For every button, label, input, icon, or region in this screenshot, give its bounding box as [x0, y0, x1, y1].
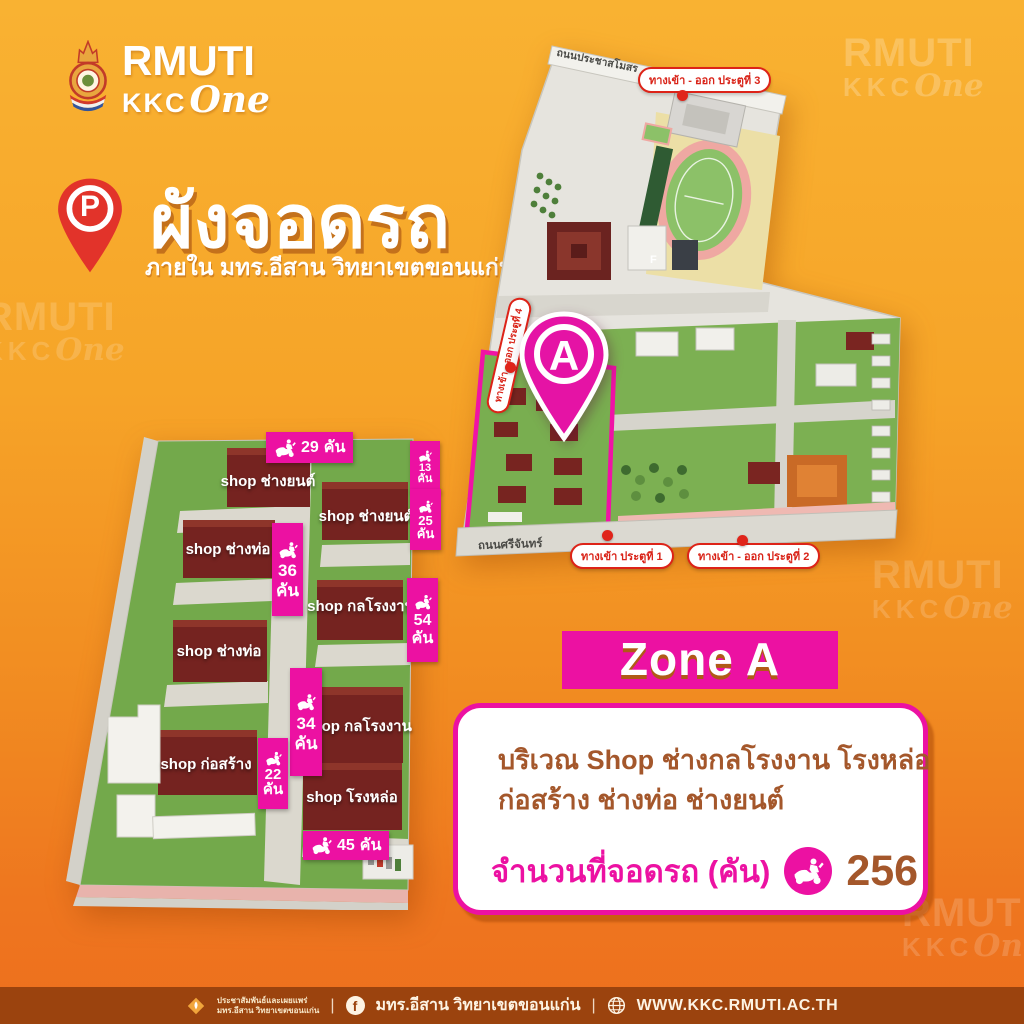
gate-1-label: ทางเข้า ประตูที่ 1: [570, 543, 674, 569]
count-pill-22: 22คัน: [258, 738, 288, 809]
pin-letter-p: P: [55, 190, 125, 224]
count-pill-36: 36คัน: [272, 523, 303, 616]
zone-a-pin: A: [516, 310, 612, 446]
building-f-label: F: [650, 254, 657, 266]
shop-label: shop ช่างยนต์: [319, 504, 414, 528]
gate-4-dot: [505, 362, 516, 373]
gate-3-label: ทางเข้า - ออก ประตูที่ 3: [638, 67, 771, 93]
logo-wordmark: RMUTI KKCOne: [122, 40, 270, 118]
globe-icon: [607, 996, 626, 1015]
pr-credit: ประชาสัมพันธ์และเผยแพร่ มทร.อีสาน วิทยาเ…: [217, 996, 320, 1016]
pin-letter-a: A: [516, 332, 612, 380]
facebook-page-name[interactable]: มทร.อีสาน วิทยาเขตขอนแก่น: [376, 993, 581, 1018]
university-emblem-icon: [62, 40, 114, 116]
scooter-icon: [278, 540, 298, 560]
white-building: [628, 226, 666, 270]
shop-label: shop ช่างท่อ: [177, 639, 262, 663]
total-parking-label: จำนวนที่จอดรถ (คัน): [491, 846, 770, 896]
scooter-icon: [792, 855, 824, 887]
gate-2-label: ทางเข้า - ออก ประตูที่ 2: [687, 543, 820, 569]
facebook-icon[interactable]: f: [346, 996, 365, 1015]
watermark-left: RMUTI KKCOne: [0, 298, 125, 365]
zone-description-line1: บริเวณ Shop ช่างกลโรงงาน โรงหล่อ: [498, 738, 930, 781]
shop-label: shop กลโรงงาน: [307, 594, 415, 618]
footer-separator: |: [592, 997, 596, 1015]
rmuti-kkc-logo: RMUTI KKCOne: [62, 40, 270, 118]
shop-label: shop ช่างท่อ: [186, 537, 271, 561]
gate-2-dot: [737, 535, 748, 546]
count-pill-34: 34คัน: [290, 668, 322, 776]
scooter-icon: [274, 437, 296, 459]
count-pill-29: 29คัน: [266, 432, 353, 463]
shop-label: shop ก่อสร้าง: [160, 752, 251, 776]
website-url[interactable]: WWW.KKC.RMUTI.AC.TH: [637, 997, 838, 1015]
scooter-icon: [296, 692, 316, 712]
orange-roof-building: [787, 455, 847, 507]
count-pill-45: 45คัน: [303, 831, 389, 860]
footer-bar: ประชาสัมพันธ์และเผยแพร่ มทร.อีสาน วิทยาเ…: [0, 987, 1024, 1024]
scooter-icon: [414, 593, 432, 611]
zone-description-line2: ก่อสร้าง ช่างท่อ ช่างยนต์: [498, 778, 784, 821]
dark-building: [672, 240, 698, 270]
zone-a-info-box: บริเวณ Shop ช่างกลโรงงาน โรงหล่อ ก่อสร้า…: [453, 703, 928, 915]
scooter-badge-icon: [784, 847, 832, 895]
parking-pin-icon: P: [55, 176, 125, 276]
count-pill-13: 13คัน: [410, 441, 440, 493]
road-bottom-label: ถนนศรีจันทร์: [478, 535, 543, 555]
scooter-icon: [311, 835, 332, 856]
scooter-icon: [418, 449, 432, 463]
footer-separator: |: [330, 997, 334, 1015]
gate-3-dot: [677, 90, 688, 101]
count-pill-54: 54คัน: [407, 578, 438, 662]
temple-building: [547, 222, 611, 280]
shop-label: shop ช่างยนต์: [221, 469, 316, 493]
count-pill-25: 25คัน: [410, 489, 441, 550]
shop-label: shop โรงหล่อ: [306, 785, 398, 809]
scooter-icon: [418, 499, 433, 514]
pr-diamond-icon: [186, 996, 206, 1016]
infographic-canvas: RMUTI KKCOne RMUTI KKCOne RMUTI KKCOne R…: [0, 0, 1024, 1024]
scooter-icon: [265, 750, 282, 767]
zone-a-heading: Zone A: [562, 631, 838, 689]
gate-1-dot: [602, 530, 613, 541]
total-parking-row: จำนวนที่จอดรถ (คัน) 256: [491, 846, 918, 896]
total-parking-value: 256: [846, 847, 918, 896]
